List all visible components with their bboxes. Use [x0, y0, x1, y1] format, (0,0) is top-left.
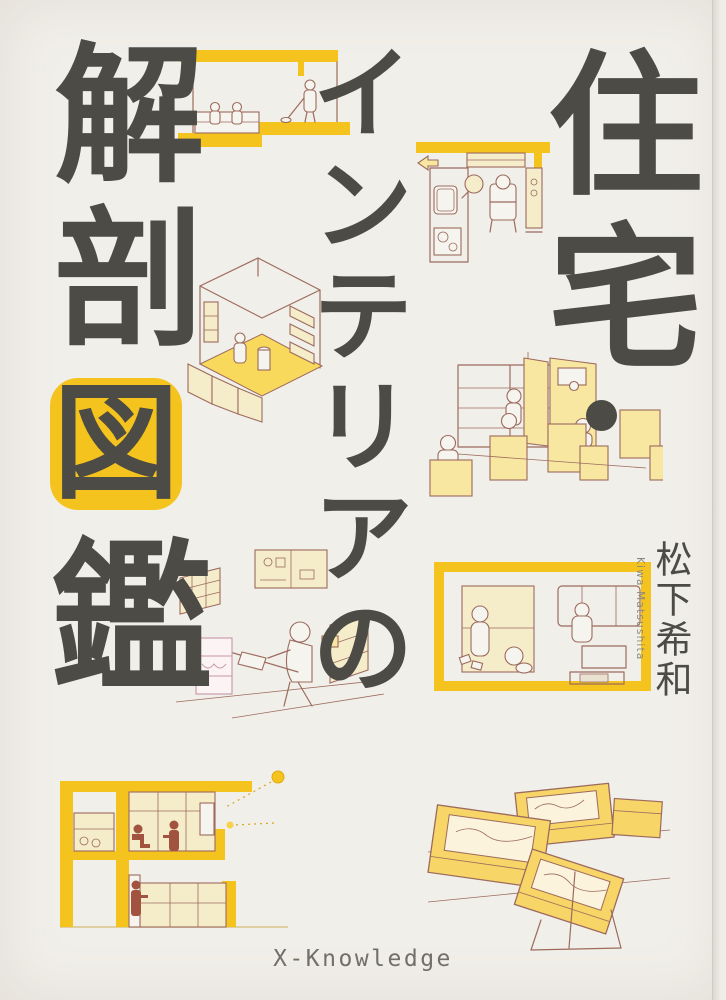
sun-icon: [226, 771, 284, 829]
title-boxed-character-box: 図: [50, 378, 182, 510]
book-cover: 住宅 インテリアの 解剖 図 鑑 松下希和 Kiwa Matsushita X-…: [0, 0, 726, 1000]
author-name-japanese: 松下希和: [652, 540, 689, 700]
bedroom-plan-framed-illustration: [430, 558, 658, 696]
house-cross-section-illustration: [52, 763, 294, 935]
book-page-edge: [712, 0, 726, 1000]
publisher-logo: X-Knowledge: [0, 946, 726, 972]
author-name-romaji: Kiwa Matsushita: [634, 557, 646, 661]
storage-boxes-illustration: [425, 760, 673, 952]
title-column-middle: インテリアの: [302, 40, 404, 706]
title-left-bottom: 鑑: [35, 532, 197, 694]
title-column-right: 住宅: [534, 44, 689, 390]
title-column-left: 解剖 図 鑑: [18, 36, 214, 694]
interpunct-dot: [586, 400, 617, 431]
title-left-top: 解剖: [41, 36, 191, 364]
title-boxed-character: 図: [53, 381, 179, 507]
